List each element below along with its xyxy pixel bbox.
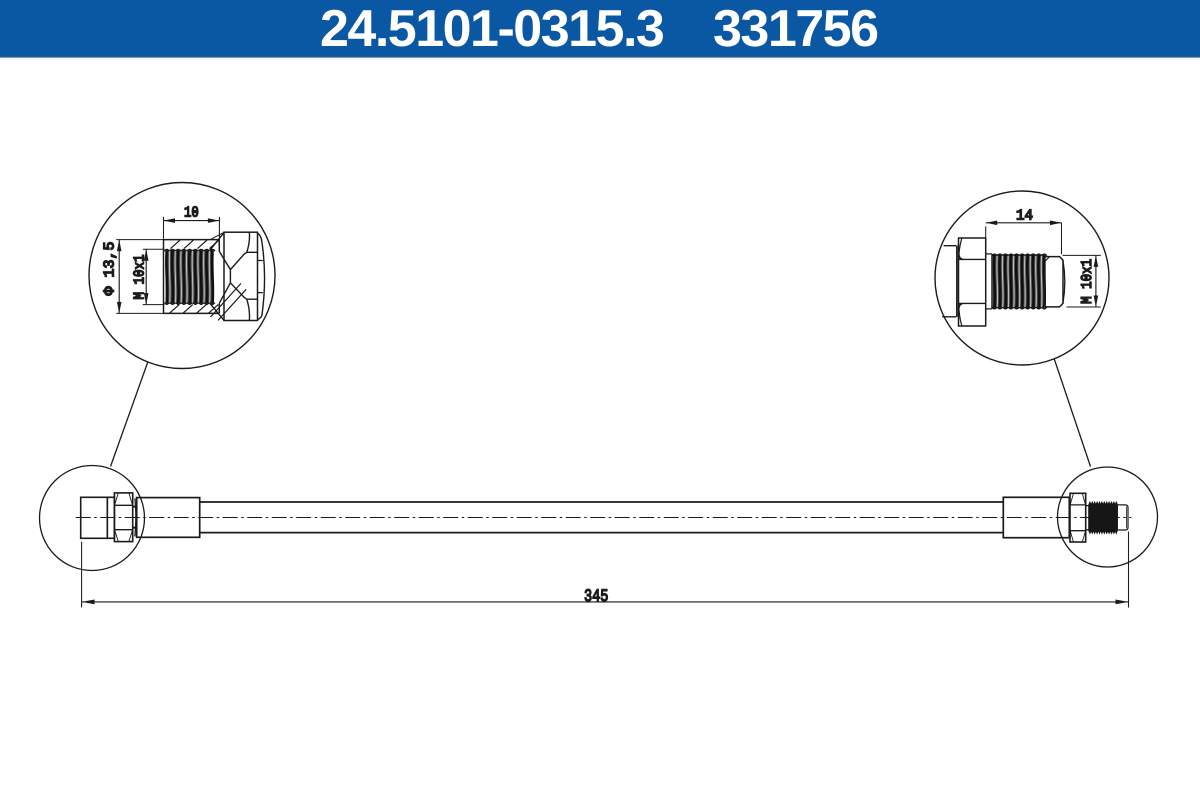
svg-text:14: 14 xyxy=(1016,207,1033,224)
svg-text:331756: 331756 xyxy=(713,0,878,58)
svg-text:M 10x1: M 10x1 xyxy=(1079,259,1096,304)
svg-text:Φ 13,5: Φ 13,5 xyxy=(102,242,119,296)
svg-text:10: 10 xyxy=(184,205,199,222)
svg-text:M 10x1: M 10x1 xyxy=(131,255,148,300)
svg-text:24.5101-0315.3: 24.5101-0315.3 xyxy=(320,0,664,58)
svg-text:345: 345 xyxy=(584,587,609,607)
